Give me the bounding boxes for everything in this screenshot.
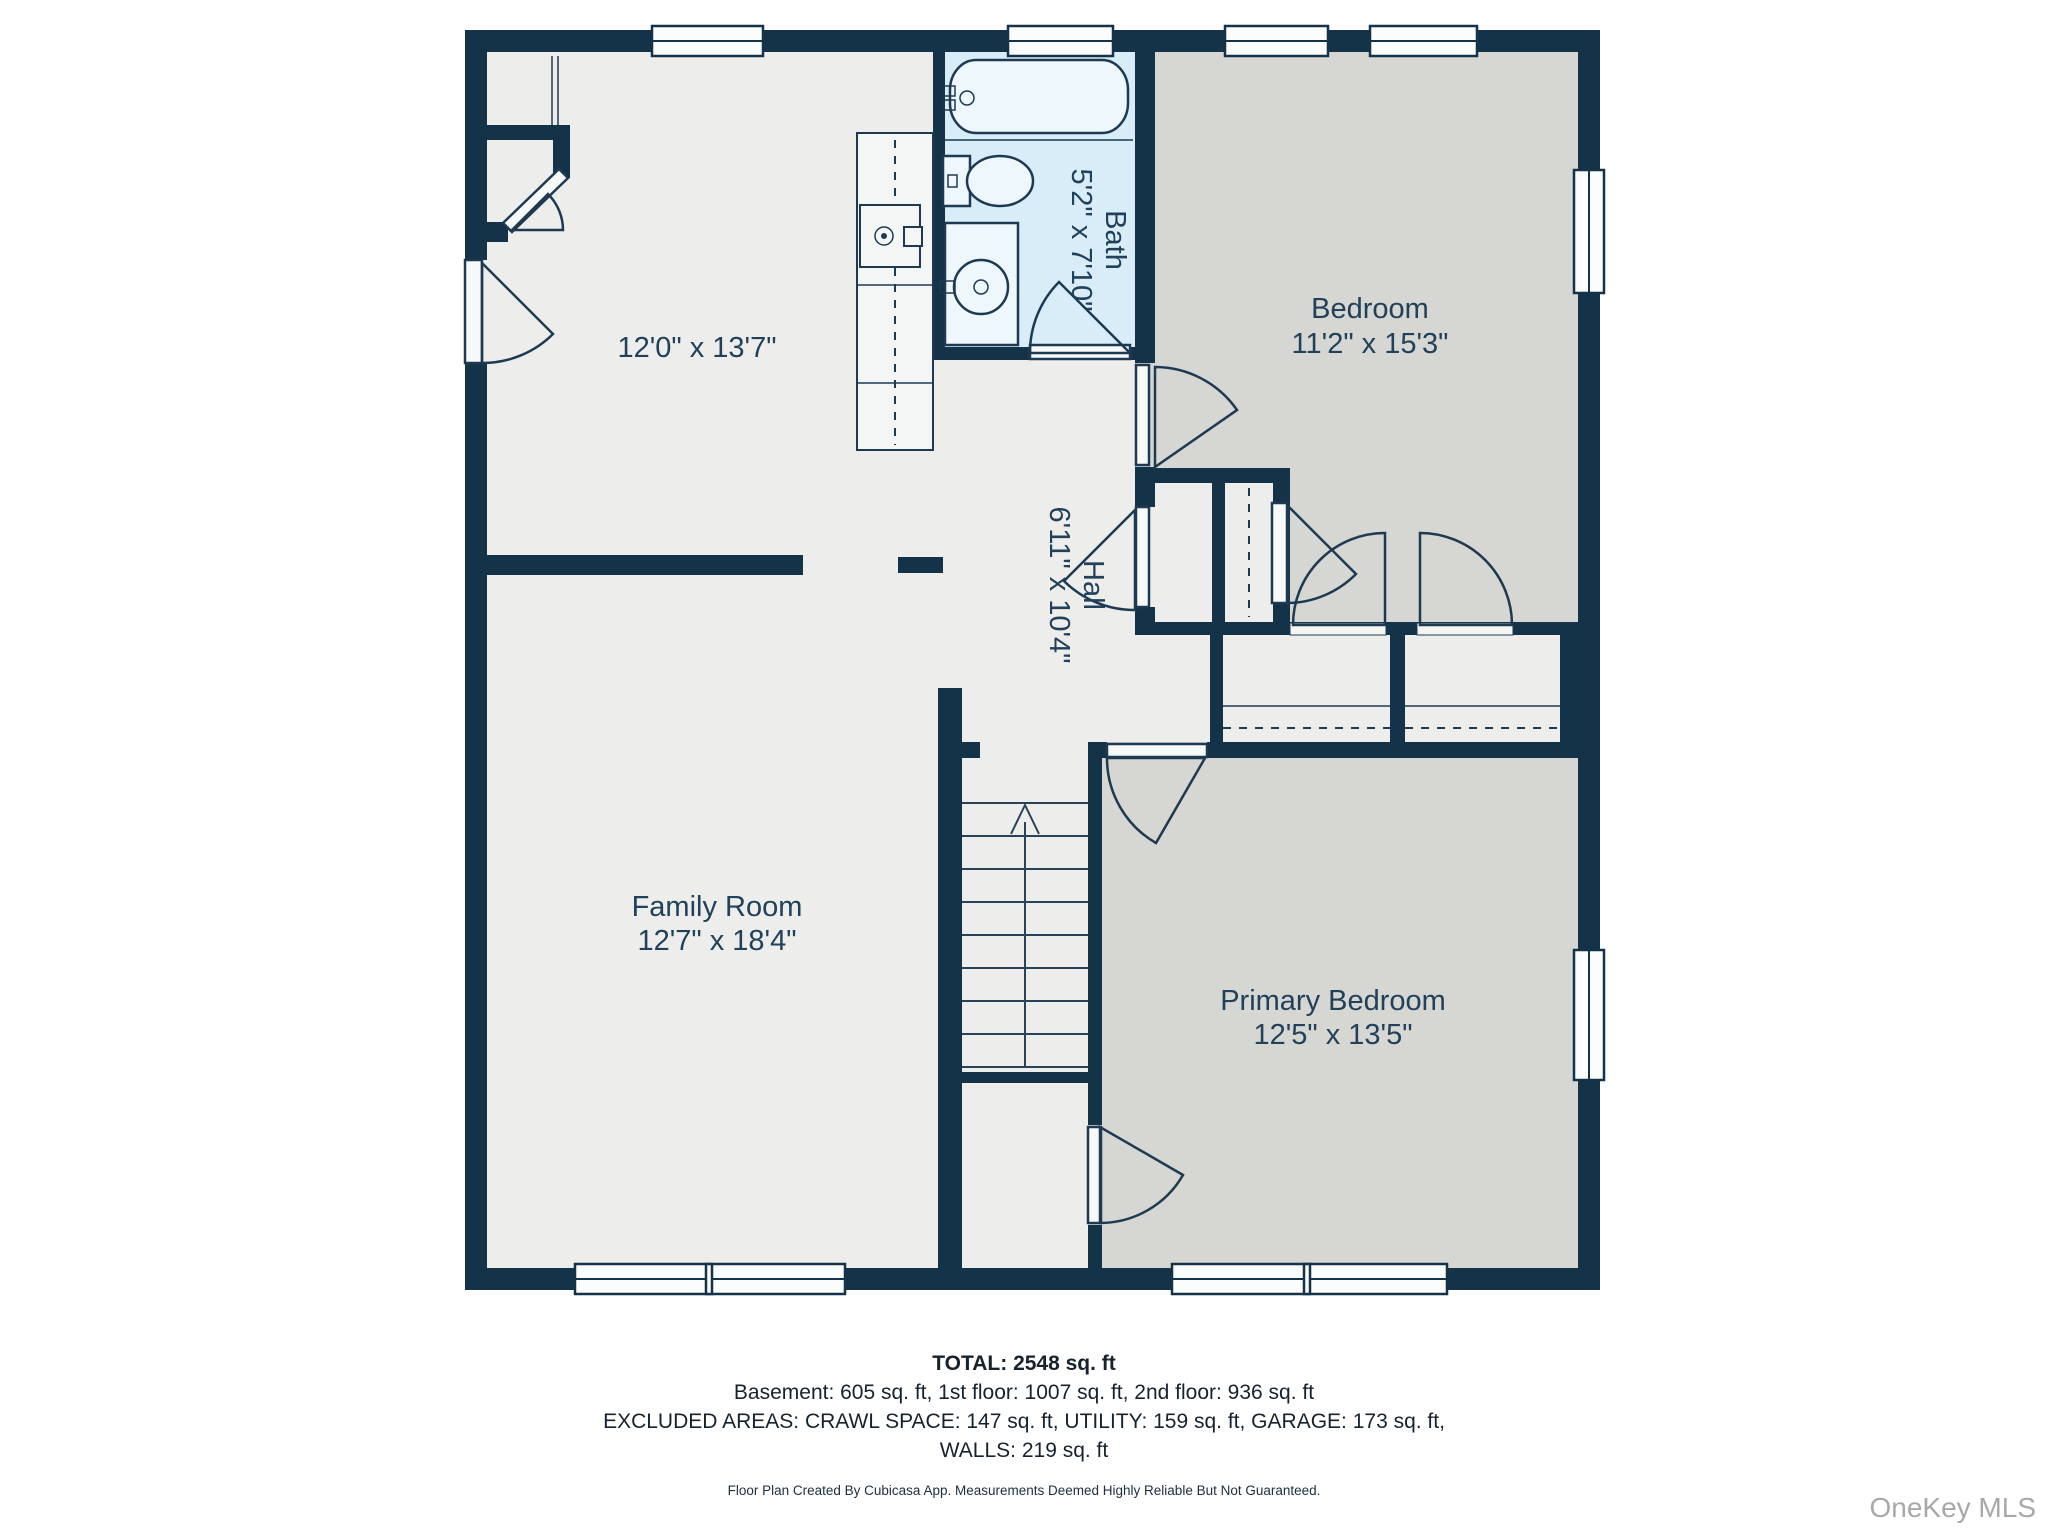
hall-closet-door-leaf [1136,507,1149,607]
window-family-bottom [575,1264,845,1294]
window-bedroom-top-2 [1370,26,1477,56]
excluded-areas: EXCLUDED AREAS: CRAWL SPACE: 147 sq. ft,… [0,1407,2048,1436]
window-bedroom-right [1574,170,1604,293]
kitchen-counter [857,133,933,450]
sink [940,223,1018,345]
top-room-dims: 12'0" x 13'7" [617,332,776,364]
floor-areas: Basement: 605 sq. ft, 1st floor: 1007 sq… [0,1378,2048,1407]
closet-b-door-leaf [1272,503,1288,603]
bath-name: Bath [1099,210,1131,270]
bedroom-name: Bedroom [1311,293,1429,325]
area-summary: TOTAL: 2548 sq. ft Basement: 605 sq. ft,… [0,1349,2048,1465]
window-bedroom-top-1 [1225,26,1328,56]
window-primary-bottom [1172,1264,1447,1294]
watermark: OneKey MLS [1869,1492,2036,1524]
toilet [943,156,1033,206]
floors [487,52,1578,1268]
family-room-dims: 12'7" x 18'4" [637,925,796,957]
window-top-left-room [652,26,763,56]
bedroom-dims: 11'2" x 15'3" [1292,328,1449,360]
door-leaf [465,260,482,363]
window-bath [1008,26,1113,56]
hall-name: Hall [1077,560,1109,610]
primary-bedroom-dims: 12'5" x 13'5" [1253,1019,1412,1051]
family-room-name: Family Room [632,891,803,923]
bathtub [944,60,1128,133]
floor-plan: 12'0" x 13'7" Bath 5'2" x 7'10" Bedroom … [0,0,2048,1536]
primary-bedroom-name: Primary Bedroom [1220,985,1446,1017]
disclaimer: Floor Plan Created By Cubicasa App. Meas… [0,1483,2048,1498]
window-primary-right [1574,950,1604,1080]
floor-plan-page: 12'0" x 13'7" Bath 5'2" x 7'10" Bedroom … [0,0,2048,1536]
bath-dims: 5'2" x 7'10" [1065,169,1097,312]
hall-dims: 6'11" x 10'4" [1043,507,1075,664]
primary-door-leaf [1107,744,1207,757]
closet-a-floor [1155,483,1212,622]
total-area: TOTAL: 2548 sq. ft [0,1349,2048,1378]
excluded-areas-walls: WALLS: 219 sq. ft [0,1436,2048,1465]
bedroom-door-leaf [1136,365,1149,465]
stair-opening [980,742,1088,758]
